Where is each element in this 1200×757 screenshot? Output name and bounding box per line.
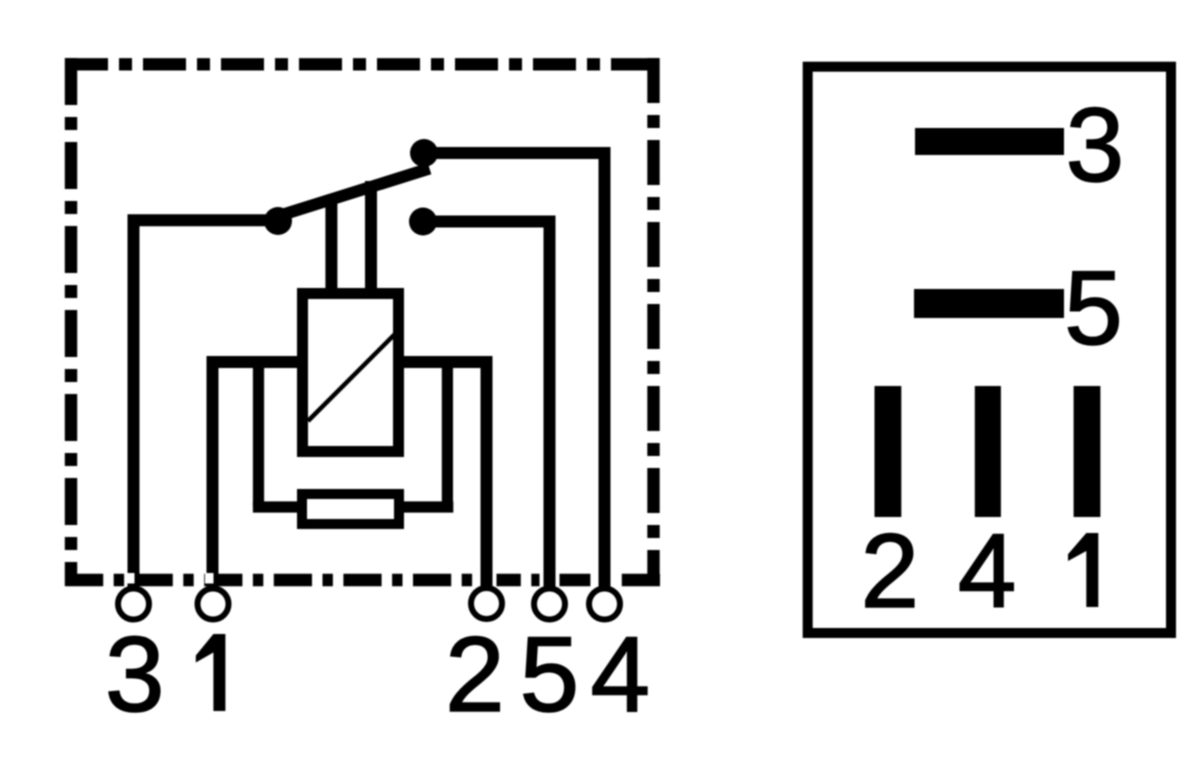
svg-text:3: 3 [1066,87,1124,204]
svg-text:2: 2 [861,513,919,630]
svg-text:2: 2 [445,614,505,734]
svg-text:3: 3 [105,614,165,734]
svg-text:5: 5 [1064,250,1122,367]
svg-text:5: 5 [520,614,580,734]
svg-text:4: 4 [958,513,1016,630]
svg-text:4: 4 [590,614,650,734]
